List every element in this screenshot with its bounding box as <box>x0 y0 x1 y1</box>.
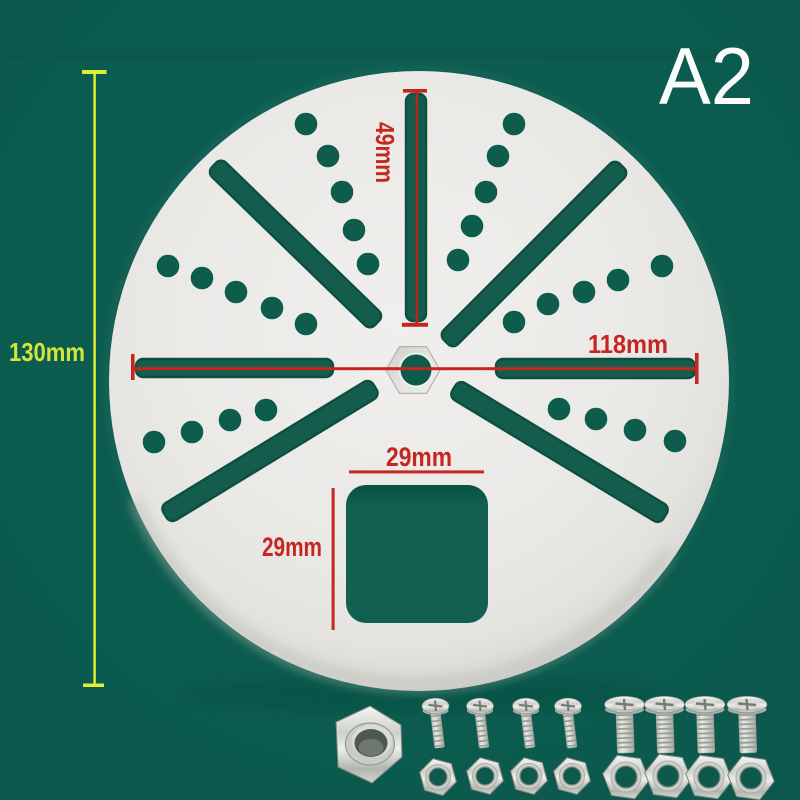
svg-text:29mm: 29mm <box>262 532 322 562</box>
svg-text:29mm: 29mm <box>386 442 452 472</box>
svg-text:130mm: 130mm <box>9 337 85 367</box>
svg-text:A2: A2 <box>659 32 754 122</box>
svg-text:49mm: 49mm <box>370 122 400 183</box>
svg-text:118mm: 118mm <box>588 329 668 359</box>
